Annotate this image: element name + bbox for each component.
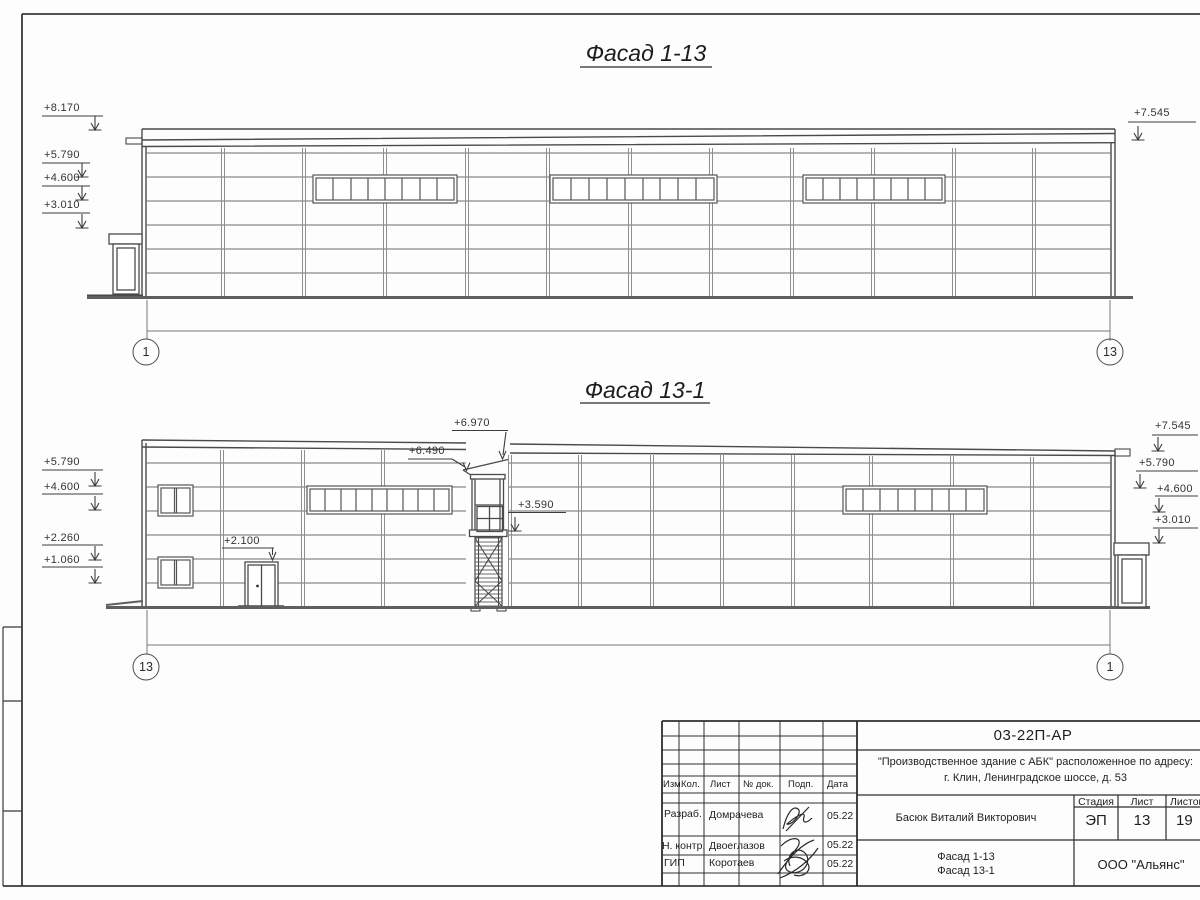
doc-number: 03-22П-АР <box>933 727 1133 744</box>
sheets-total: 19 <box>1176 812 1193 829</box>
f2-level-2260: +2.260 <box>44 532 80 544</box>
facade1-title: Фасад 1-13 <box>501 40 791 67</box>
f2-level-3010-r: +3.010 <box>1155 514 1191 526</box>
f1-level-8170: +8.170 <box>44 102 80 114</box>
stage-value: ЭП <box>1076 812 1116 829</box>
stage-header: Стадия <box>1076 796 1116 808</box>
rev-header-ndok: № док. <box>743 779 773 790</box>
sheet-number: 13 <box>1120 812 1164 829</box>
date-gip: 05.22 <box>827 858 853 870</box>
name-gip: Коротаев <box>709 857 754 869</box>
f2-level-4600-r: +4.600 <box>1157 483 1193 495</box>
sheet-title-line1: Фасад 1-13 <box>860 851 1072 863</box>
object-name-line2: г. Клин, Ленинградское шоссе, д. 53 <box>863 772 1200 784</box>
sheet-header: Лист <box>1120 796 1164 808</box>
company-name: ООО "Альянс" <box>1076 857 1200 872</box>
date-ncontrol: 05.22 <box>827 839 853 851</box>
rev-header-list: Лист <box>710 779 731 790</box>
rev-header-podp: Подп. <box>788 779 813 790</box>
date-developer: 05.22 <box>827 810 853 822</box>
sheet-title-line2: Фасад 13-1 <box>860 865 1072 877</box>
drawing-sheet: Фасад 1-13 Фасад 13-1 +8.170 +5.790 +4.6… <box>0 0 1200 900</box>
facade-1-13-drawing <box>42 67 1196 365</box>
f1-grid-1: 1 <box>133 345 159 359</box>
object-name-line1: "Производственное здание с АБК" располож… <box>863 756 1200 768</box>
facade-13-1-drawing <box>42 403 1198 680</box>
rev-header-data: Дата <box>827 779 848 790</box>
f2-level-3590: +3.590 <box>518 499 554 511</box>
f2-level-6490: +6.490 <box>409 445 445 457</box>
f2-level-6970: +6.970 <box>454 417 490 429</box>
f2-level-7545-r: +7.545 <box>1155 420 1191 432</box>
client-name: Басюк Виталий Викторович <box>860 812 1072 824</box>
facade2-title: Фасад 13-1 <box>500 377 790 404</box>
f2-grid-13: 13 <box>133 660 159 674</box>
f2-level-4600-l: +4.600 <box>44 481 80 493</box>
rev-header-kol: Кол. <box>681 779 700 790</box>
f2-level-5790-l: +5.790 <box>44 456 80 468</box>
f2-level-5790-r: +5.790 <box>1139 457 1175 469</box>
role-developer: Разраб. <box>664 808 702 820</box>
signatures <box>778 807 818 878</box>
sheets-header: Листов <box>1170 796 1200 808</box>
f1-level-7545: +7.545 <box>1134 107 1170 119</box>
name-developer: Домрачева <box>709 809 763 821</box>
f1-level-4600: +4.600 <box>44 172 80 184</box>
f2-grid-1: 1 <box>1097 660 1123 674</box>
role-ncontrol: Н. контр. <box>662 840 705 852</box>
f1-grid-13: 13 <box>1097 345 1123 359</box>
role-gip: ГИП <box>664 857 685 869</box>
f2-level-1060: +1.060 <box>44 554 80 566</box>
f1-level-5790: +5.790 <box>44 149 80 161</box>
f2-level-2100: +2.100 <box>224 535 260 547</box>
name-ncontrol: Двоеглазов <box>709 840 765 852</box>
f1-level-3010: +3.010 <box>44 199 80 211</box>
